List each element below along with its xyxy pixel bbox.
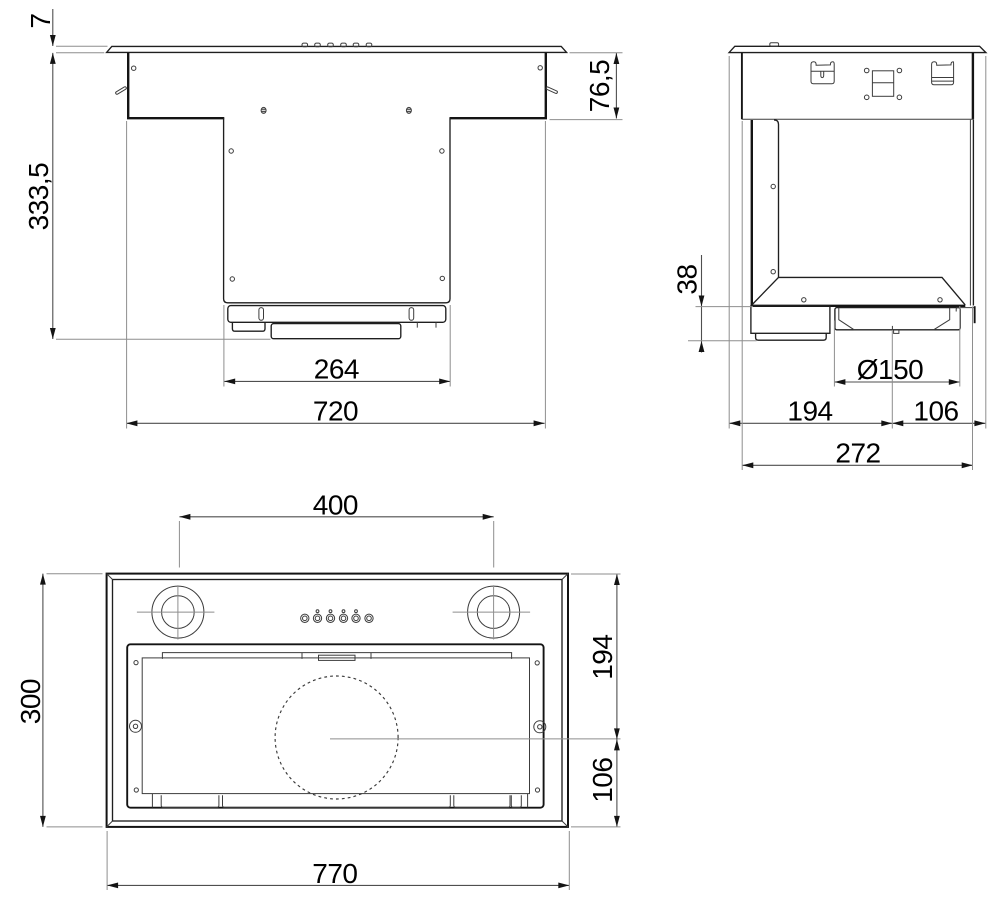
svg-text:194: 194 [787, 396, 832, 427]
svg-text:272: 272 [835, 438, 880, 469]
svg-text:7: 7 [25, 13, 56, 28]
svg-text:720: 720 [313, 396, 358, 427]
svg-text:333,5: 333,5 [23, 163, 54, 231]
svg-text:106: 106 [587, 758, 618, 803]
svg-text:Ø150: Ø150 [857, 354, 924, 385]
svg-text:400: 400 [313, 489, 358, 520]
svg-text:38: 38 [672, 264, 703, 294]
svg-text:106: 106 [913, 396, 958, 427]
svg-text:300: 300 [15, 679, 46, 724]
svg-text:264: 264 [314, 353, 359, 384]
svg-text:76,5: 76,5 [584, 60, 615, 113]
svg-text:194: 194 [587, 635, 618, 680]
svg-text:770: 770 [312, 858, 357, 889]
